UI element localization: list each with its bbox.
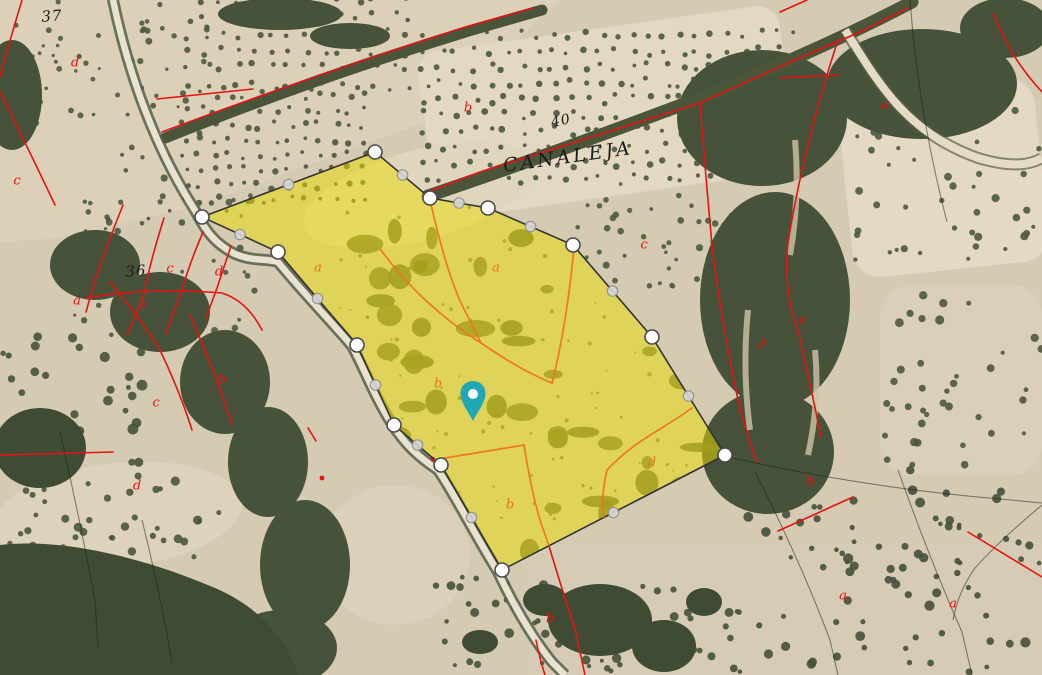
subparcel-letter: b bbox=[806, 475, 814, 490]
subparcel-letter: b bbox=[218, 373, 226, 388]
subparcel-letter: b bbox=[139, 297, 147, 312]
midpoint-handle[interactable] bbox=[454, 198, 464, 208]
subparcel-letter: c bbox=[640, 238, 648, 253]
subparcel-letter-interior: a bbox=[492, 261, 500, 276]
midpoint-handle[interactable] bbox=[312, 293, 322, 303]
boundary-point-dot bbox=[320, 476, 325, 481]
vertex-handle[interactable] bbox=[481, 201, 495, 215]
place-label: 36 bbox=[125, 261, 147, 280]
subparcel-letter: b bbox=[546, 612, 554, 627]
vertex-handle[interactable] bbox=[271, 245, 285, 259]
vertex-handle[interactable] bbox=[495, 563, 509, 577]
subparcel-letter: a bbox=[839, 589, 847, 604]
vertex-handle[interactable] bbox=[423, 191, 437, 205]
subparcel-letter: d bbox=[133, 479, 141, 494]
midpoint-handle[interactable] bbox=[235, 229, 245, 239]
midpoint-handle[interactable] bbox=[412, 440, 422, 450]
vertex-handle[interactable] bbox=[645, 330, 659, 344]
vertex-handle[interactable] bbox=[434, 458, 448, 472]
vertex-handle[interactable] bbox=[350, 338, 364, 352]
subparcel-letter-interior: b bbox=[434, 377, 442, 392]
subparcel-letter: d bbox=[758, 338, 766, 353]
vertex-handle[interactable] bbox=[368, 145, 382, 159]
subparcel-letter: c bbox=[13, 174, 21, 189]
midpoint-handle[interactable] bbox=[607, 286, 617, 296]
subparcel-letter: d bbox=[215, 265, 223, 280]
midpoint-handle[interactable] bbox=[397, 170, 407, 180]
subparcel-letter: c bbox=[152, 396, 160, 411]
midpoint-handle[interactable] bbox=[283, 179, 293, 189]
subparcel-letter: e bbox=[799, 313, 807, 328]
subparcel-letter: b bbox=[464, 101, 472, 116]
vertex-handle[interactable] bbox=[195, 210, 209, 224]
midpoint-handle[interactable] bbox=[608, 507, 618, 517]
subparcel-letter: a bbox=[881, 98, 889, 113]
vertex-handle[interactable] bbox=[718, 448, 732, 462]
midpoint-handle[interactable] bbox=[525, 221, 535, 231]
midpoint-handle[interactable] bbox=[683, 391, 693, 401]
subparcel-letter-interior: d bbox=[648, 456, 656, 471]
subparcel-letter-interior: a bbox=[314, 261, 322, 276]
midpoint-handle[interactable] bbox=[466, 512, 476, 522]
subparcel-letter: d bbox=[71, 56, 79, 71]
aerial-map: dccdabbcdbacedbbaaaabdb 373640CANALEJA bbox=[0, 0, 1042, 675]
place-label: 37 bbox=[41, 6, 63, 25]
vertex-handle[interactable] bbox=[566, 238, 580, 252]
subparcel-letter: a bbox=[949, 597, 957, 612]
map-canvas[interactable]: dccdabbcdbacedbbaaaabdb 373640CANALEJA bbox=[0, 0, 1042, 675]
vertex-handle[interactable] bbox=[387, 418, 401, 432]
subparcel-letter: a bbox=[73, 294, 81, 309]
subparcel-letter-interior: b bbox=[506, 498, 514, 513]
subparcel-letter: c bbox=[166, 262, 174, 277]
midpoint-handle[interactable] bbox=[370, 380, 380, 390]
